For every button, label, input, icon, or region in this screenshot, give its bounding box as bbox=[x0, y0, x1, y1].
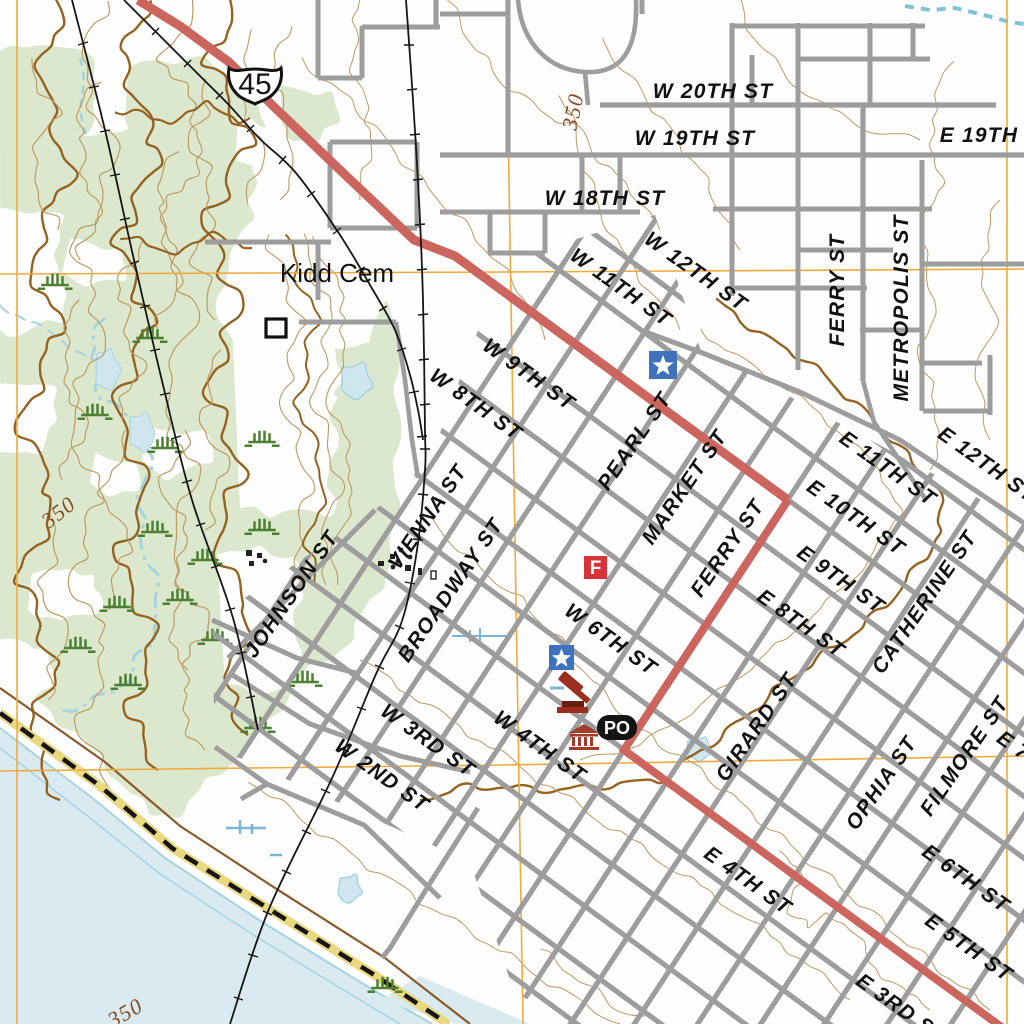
svg-text:FERRY ST: FERRY ST bbox=[826, 233, 849, 347]
svg-text:45: 45 bbox=[238, 68, 271, 101]
svg-text:W 19TH ST: W 19TH ST bbox=[635, 127, 756, 150]
svg-text:W 20TH ST: W 20TH ST bbox=[653, 80, 774, 103]
svg-text:METROPOLIS ST: METROPOLIS ST bbox=[890, 213, 913, 401]
svg-text:PO: PO bbox=[604, 718, 630, 738]
svg-text:W 18TH ST: W 18TH ST bbox=[545, 187, 666, 210]
svg-text:Kidd Cem: Kidd Cem bbox=[280, 258, 394, 288]
svg-text:F: F bbox=[590, 558, 602, 579]
svg-text:E 19TH: E 19TH bbox=[940, 124, 1018, 147]
